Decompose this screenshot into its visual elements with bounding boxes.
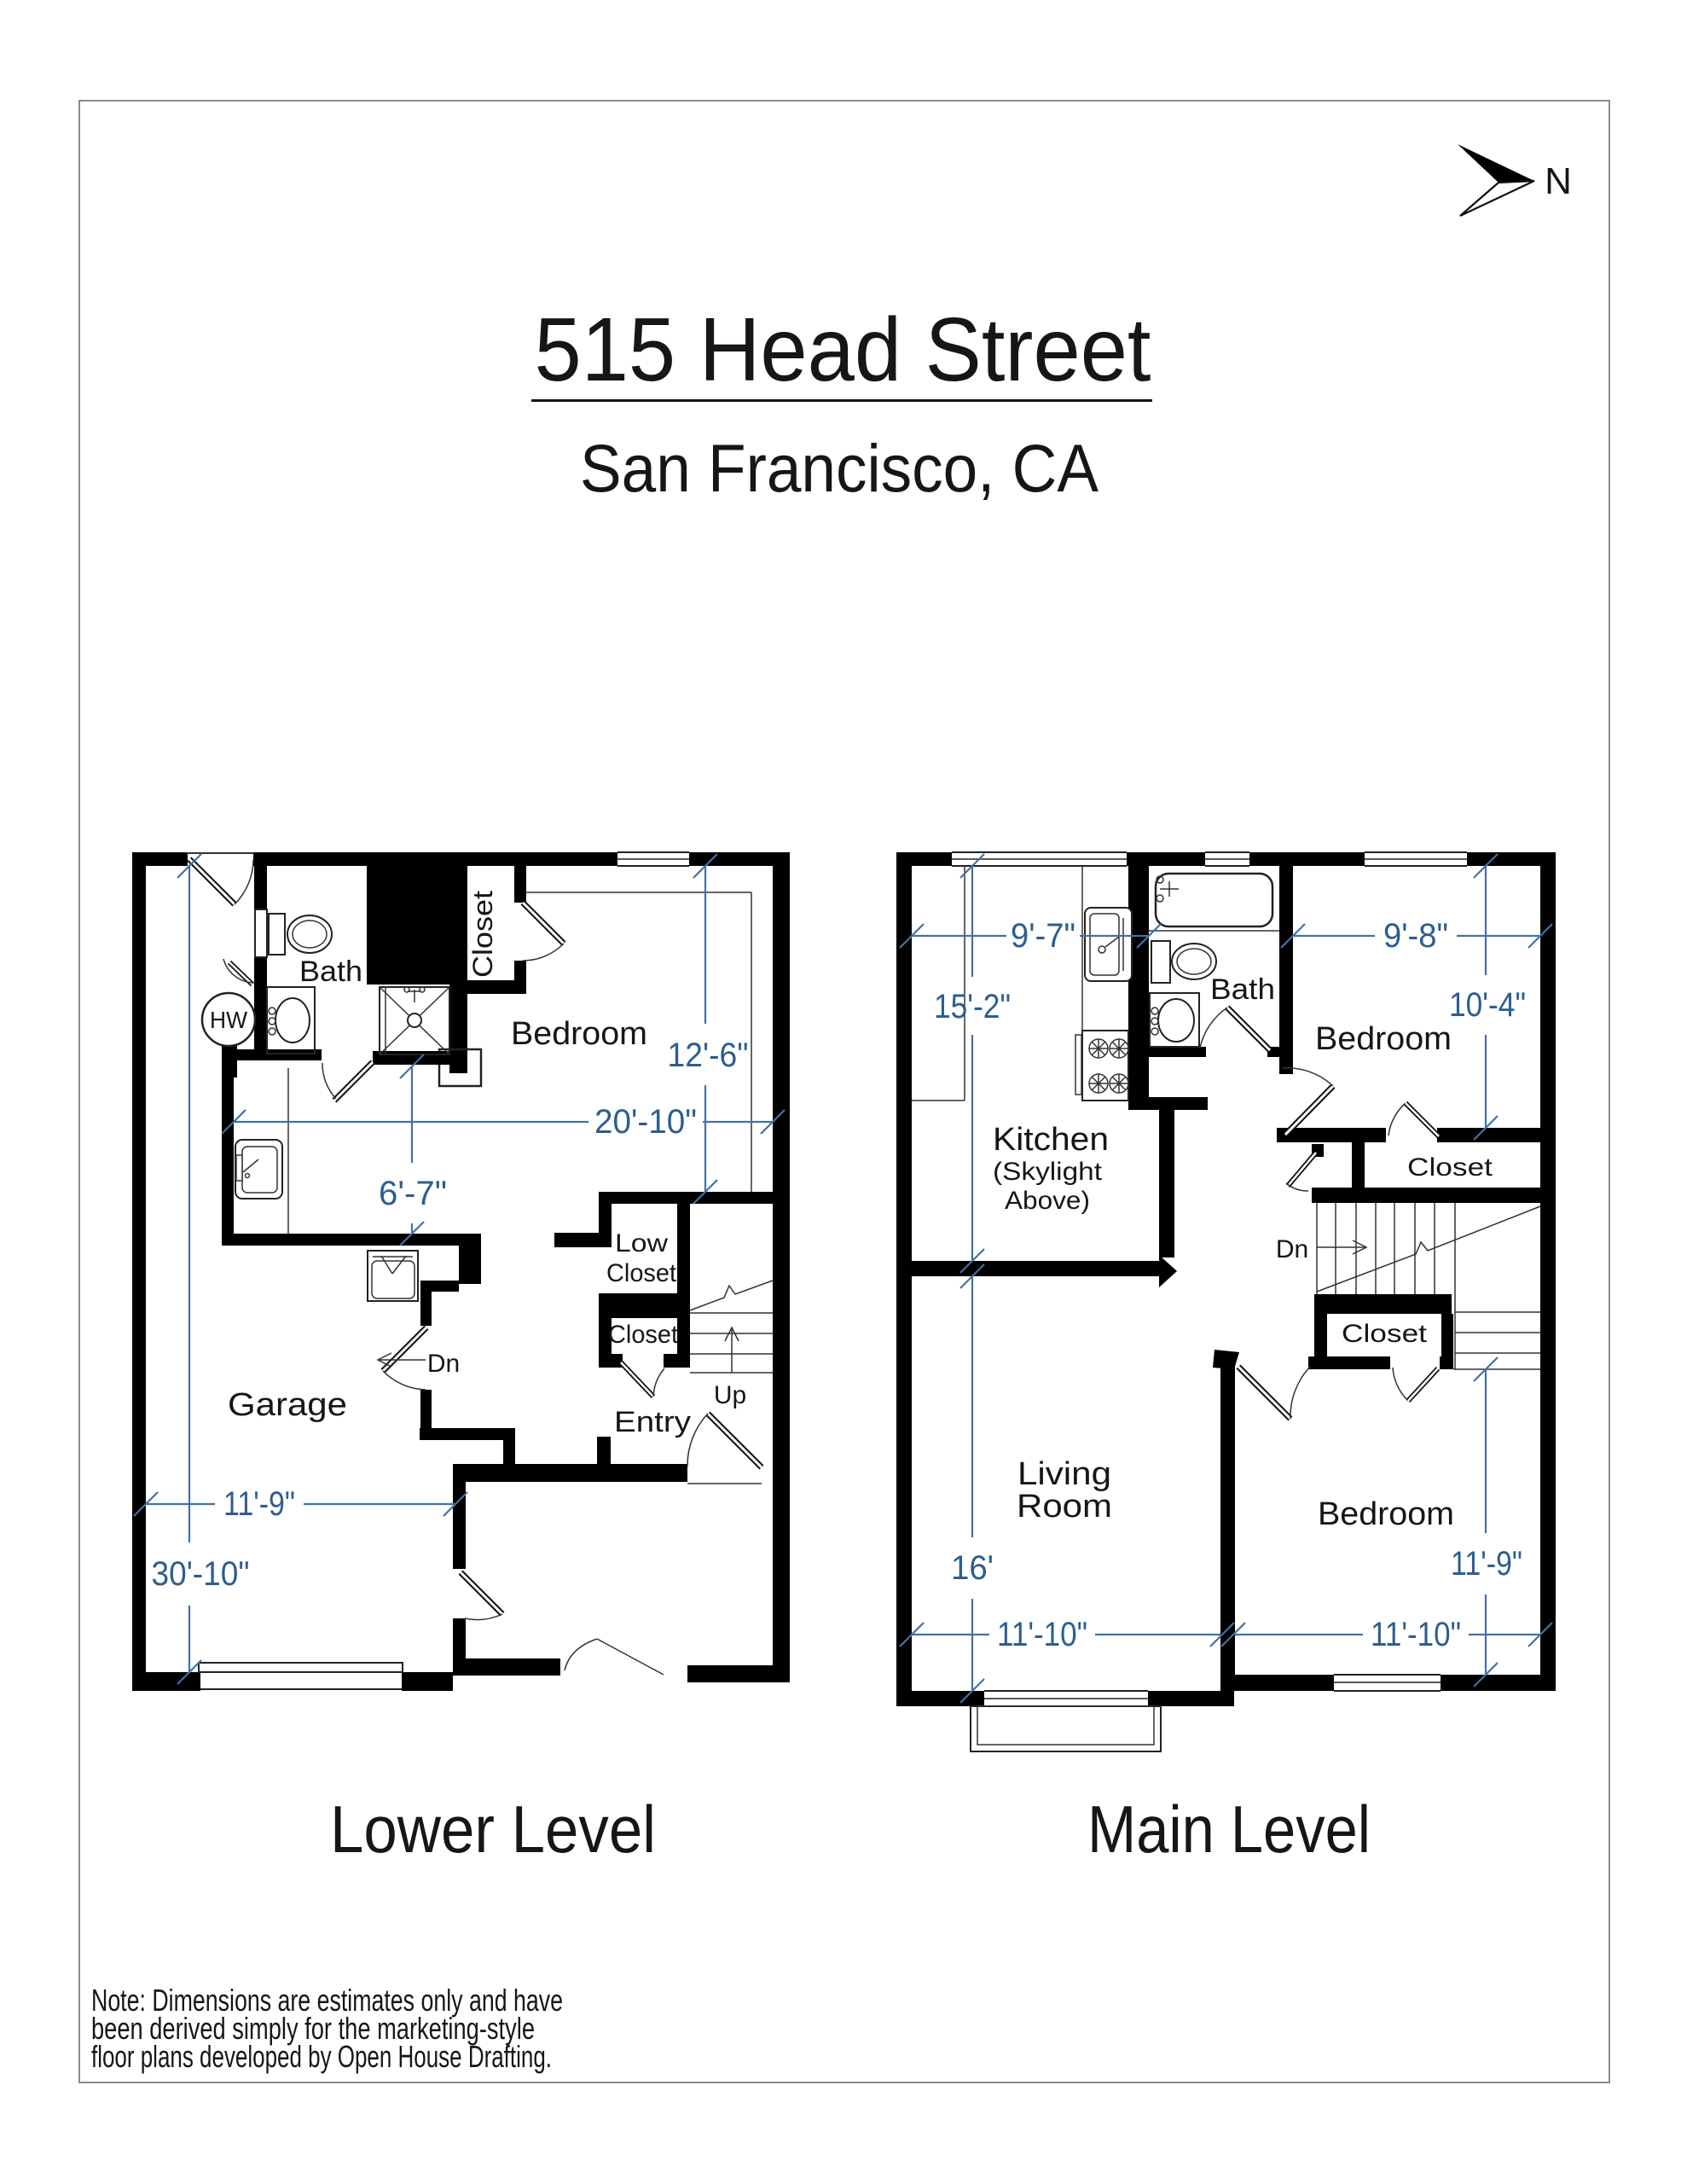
svg-text:Closet: Closet [1407, 1153, 1493, 1182]
svg-text:floor plans developed by Open: floor plans developed by Open House Draf… [91, 2039, 552, 2074]
svg-text:Low: Low [615, 1229, 668, 1258]
svg-text:30'-10": 30'-10" [152, 1555, 250, 1593]
svg-text:San Francisco, CA: San Francisco, CA [580, 430, 1099, 506]
svg-text:Up: Up [714, 1381, 746, 1409]
svg-text:Lower Level: Lower Level [330, 1792, 656, 1867]
svg-text:Garage: Garage [228, 1387, 347, 1423]
svg-text:Entry: Entry [614, 1406, 691, 1438]
svg-text:Living: Living [1017, 1456, 1111, 1492]
svg-text:N: N [1545, 160, 1572, 202]
svg-text:11'-10": 11'-10" [1371, 1616, 1461, 1653]
svg-text:Bath: Bath [1210, 973, 1275, 1006]
svg-text:16': 16' [951, 1549, 994, 1587]
svg-text:Dn: Dn [1276, 1235, 1308, 1263]
svg-text:Dn: Dn [427, 1350, 460, 1378]
svg-text:9'-8": 9'-8" [1383, 917, 1448, 955]
svg-text:HW: HW [210, 1007, 248, 1033]
svg-text:Above): Above) [1005, 1187, 1090, 1215]
svg-text:12'-6": 12'-6" [668, 1037, 749, 1074]
svg-text:6'-7": 6'-7" [379, 1175, 447, 1212]
svg-text:Closet: Closet [1342, 1320, 1428, 1348]
svg-text:11'-10": 11'-10" [997, 1616, 1087, 1653]
svg-text:Bedroom: Bedroom [511, 1016, 647, 1052]
svg-text:Bedroom: Bedroom [1318, 1496, 1454, 1532]
svg-text:Main Level: Main Level [1087, 1792, 1371, 1867]
svg-text:Closet: Closet [467, 891, 498, 978]
svg-text:10'-4": 10'-4" [1449, 986, 1526, 1024]
svg-text:Kitchen: Kitchen [993, 1122, 1109, 1158]
svg-text:11'-9": 11'-9" [1451, 1545, 1522, 1583]
svg-text:11'-9": 11'-9" [223, 1485, 295, 1523]
svg-text:15'-2": 15'-2" [934, 988, 1011, 1025]
svg-text:Closet: Closet [608, 1321, 679, 1349]
svg-text:20'-10": 20'-10" [594, 1103, 697, 1141]
svg-text:(Skylight: (Skylight [993, 1158, 1103, 1186]
svg-text:Bedroom: Bedroom [1315, 1021, 1452, 1057]
svg-text:Room: Room [1017, 1489, 1112, 1525]
svg-text:515 Head Street: 515 Head Street [535, 299, 1151, 400]
svg-text:Bath: Bath [299, 955, 362, 988]
svg-text:9'-7": 9'-7" [1011, 917, 1075, 955]
svg-text:Closet: Closet [606, 1259, 677, 1287]
